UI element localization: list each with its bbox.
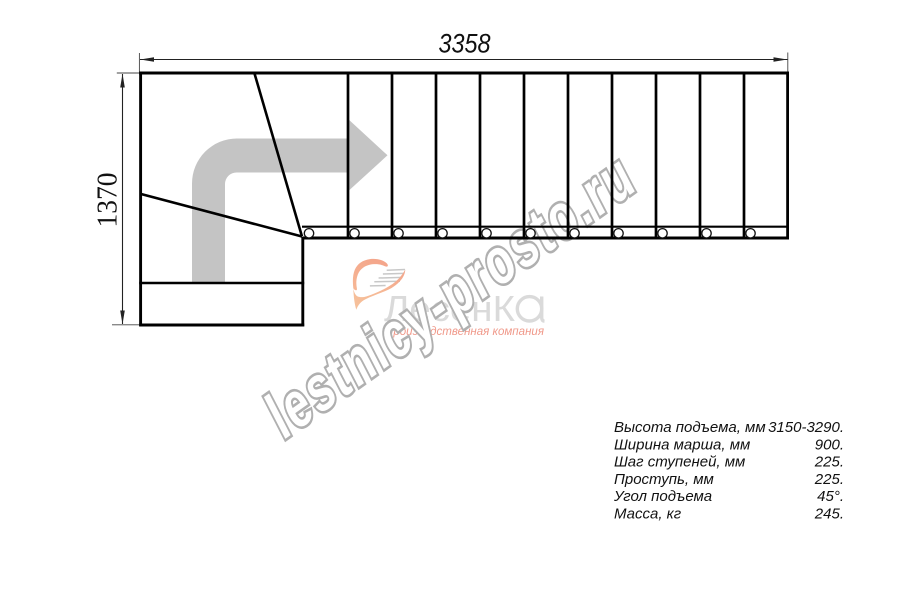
svg-text:245.: 245. [814, 506, 844, 523]
svg-text:3358: 3358 [439, 29, 491, 59]
svg-text:Шаг ступеней, мм: Шаг ступеней, мм [614, 454, 745, 471]
svg-text:Масса, кг: Масса, кг [614, 506, 682, 523]
svg-text:Проступь, мм: Проступь, мм [614, 471, 714, 488]
svg-text:Ширина марша, мм: Ширина марша, мм [614, 436, 750, 453]
svg-text:225.: 225. [814, 454, 844, 471]
svg-text:45°.: 45°. [817, 488, 844, 505]
svg-text:3150-3290.: 3150-3290. [768, 419, 844, 436]
svg-text:1370: 1370 [92, 173, 124, 228]
svg-text:900.: 900. [815, 436, 844, 453]
svg-text:225.: 225. [814, 471, 844, 488]
svg-text:Угол подъема: Угол подъема [613, 488, 712, 505]
svg-text:Высота подъема, мм: Высота подъема, мм [614, 419, 766, 436]
